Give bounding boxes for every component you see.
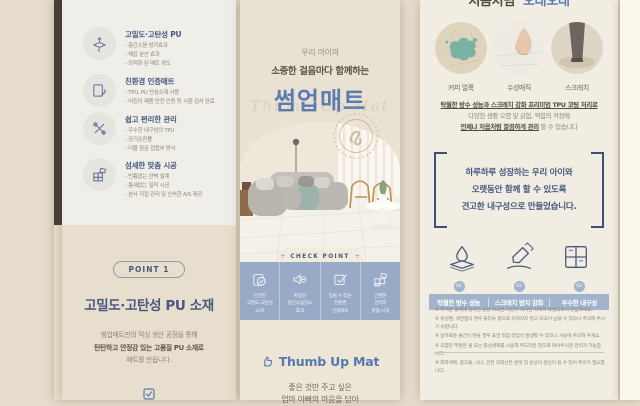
feature-item: 고밀도·고탄성 PU - 층간소음 방지효과 - 체압 분산 효과 - 최적화 … xyxy=(83,27,236,69)
panel-features: 고밀도·고탄성 PU - 층간소음 방지효과 - 체압 분산 효과 - 최적화 … xyxy=(62,0,236,400)
footer-line: 좋은 것만 주고 싶은 xyxy=(240,382,400,394)
point-1-badge: POINT 1 xyxy=(113,261,186,278)
point-body-line-strong: 탄탄하고 안정감 있는 고품질 PU 소재로 xyxy=(62,342,236,355)
point-1-section: POINT 1 고밀도·고탄성 PU 소재 썸업매트만의 믹싱 생산 공정을 통… xyxy=(62,225,236,400)
quote-line: 하루하루 성장하는 우리 아이와 xyxy=(434,165,604,182)
brand-logo: Thumb Up Mat xyxy=(240,354,400,369)
hero-subtitle: 소중한 걸음마다 함께하는 xyxy=(240,63,400,77)
durability-label: 탁월한 방수 성능 xyxy=(429,298,488,307)
quote-line: 견고한 내구성으로 만들었습니다. xyxy=(434,199,604,216)
disclaimer-list: ※ 무거운 물체에 장시간 눌린 자국은 시간이 지나면 서서히 복원되오니 안… xyxy=(435,307,605,377)
panel-durability: 처음처럼오래오래 커피 얼룩 수성매직 xyxy=(420,0,618,400)
durability-icons-row xyxy=(420,242,618,272)
plus-icon: + xyxy=(355,253,360,260)
waterproof-icon xyxy=(447,242,477,272)
check-point-caption: 간편한 관리와 맞춤 시공 xyxy=(372,293,390,315)
prev-panel-dark-section xyxy=(54,0,62,225)
check-point-caption: 믿을 수 있는 친환경 인증매트 xyxy=(329,293,352,315)
feature-bullet: - 우수한 내구성의 TPU xyxy=(125,127,177,136)
paragraph-strong: 언제나 처음처럼 깔끔하게 관리 xyxy=(461,123,539,131)
stain-test-item: 스크래치 xyxy=(550,22,605,92)
next-panel-edge xyxy=(620,0,640,400)
check-point-item: 간편한 관리와 맞춤 시공 xyxy=(360,262,400,320)
feature-bullet: - 어린이 제품 안전 인증 등 시험 검사 완료 xyxy=(125,98,214,107)
scratch-photo xyxy=(551,22,603,74)
stain-test-circles: 커피 얼룩 수성매직 스크래치 xyxy=(420,22,618,92)
hero-heading-block: 우리 아이의 소중한 걸음마다 함께하는 썸업매트 xyxy=(240,47,400,116)
easy-care-icon xyxy=(83,112,116,145)
point-1-heading: 고밀도·고탄성 PU 소재 xyxy=(62,294,236,314)
check-point-caption: 확실한 층간소음감소 효과 xyxy=(288,293,313,315)
plus-icon: + xyxy=(280,253,285,260)
disclaimer-line: ※ 유성펜, 색연필의 경우 물티슈 등으로 지워지지 않고 자국이 남을 수 … xyxy=(435,316,605,332)
eco-cert-icon xyxy=(83,74,116,107)
feature-item: 섬세한 맞춤 시공 - 빈틈없는 완벽 설계 - 틈새없는 밀착 시공 - 본사… xyxy=(83,158,236,200)
disclaimer-line: ※ 날카로운 물건이 닿을 경우 표면 찍힘·긁힘이 발생할 수 있으니 사용에… xyxy=(435,333,605,341)
disclaimer-line: ※ 화학세제, 알코올, 시너, 강한 자외선은 변색 및 손상의 원인이 될 … xyxy=(435,360,605,376)
footer-line: 엄마 아빠의 마음을 담아 xyxy=(240,394,400,406)
mat-elastic-icon xyxy=(83,27,116,60)
check-point-caption: 안전한 고밀도·고탄성 소재 xyxy=(247,293,273,315)
product-title: 썸업매트 xyxy=(240,81,400,116)
panel-hero: 우리 아이의 소중한 걸음마다 함께하는 썸업매트 Thumb Up Mat xyxy=(240,0,400,400)
feature-title: 섬세한 맞춤 시공 xyxy=(125,160,202,171)
bracket-quote: 하루하루 성장하는 우리 아이와 오랫동안 함께 할 수 있도록 견고한 내구성… xyxy=(434,152,604,228)
feature-bullet: - 본사 직접 관리 및 신속한 A/S 제공 xyxy=(125,191,202,200)
checkbox-check-icon xyxy=(62,385,236,404)
check-point-item: 안전한 고밀도·고탄성 소재 xyxy=(240,262,279,320)
feature-bullet: - 틈새없는 밀착 시공 xyxy=(125,182,202,191)
stain-caption: 커피 얼룩 xyxy=(434,82,489,92)
number-badge: 01 xyxy=(429,281,489,292)
feature-bullet: - 빈틈없는 완벽 설계 xyxy=(125,173,202,182)
water-marker-photo xyxy=(493,22,545,74)
feature-list: 고밀도·고탄성 PU - 층간소음 방지효과 - 체압 분산 효과 - 최적화 … xyxy=(62,0,236,200)
feature-item: 친환경 인증매트 - TPU, PU 안심소재 사용 - 어린이 제품 안전 인… xyxy=(83,74,236,107)
stain-caption: 스크래치 xyxy=(550,82,605,92)
check-point-band: + CHECK POINT + 안전한 고밀도·고탄성 소재 확실한 xyxy=(240,262,400,320)
feature-title: 고밀도·고탄성 PU xyxy=(125,29,181,40)
quote-line: 오랫동안 함께 할 수 있도록 xyxy=(434,182,604,199)
check-point-item: 확실한 층간소음감소 효과 xyxy=(279,262,319,320)
custom-fit-icon xyxy=(83,158,116,191)
heading-part-1: 처음처럼 xyxy=(468,0,515,9)
check-point-label: CHECK POINT xyxy=(290,254,349,260)
paragraph-line: 다양한 생활 오염 및 긁힘, 찍힘의 걱정에 xyxy=(420,111,618,122)
point-body-line: 썸업매트만의 믹싱 생산 공정을 통해 xyxy=(62,329,236,342)
hero-footer-section: Thumb Up Mat 좋은 것만 주고 싶은 엄마 아빠의 마음을 담아 xyxy=(240,320,400,400)
prev-panel-edge xyxy=(54,0,62,400)
stain-test-item: 커피 얼룩 xyxy=(434,22,489,92)
durability-icon xyxy=(561,242,591,272)
noise-speaker-icon xyxy=(291,271,308,289)
point-1-body: 썸업매트만의 믹싱 생산 공정을 통해 탄탄하고 안정감 있는 고품질 PU 소… xyxy=(62,329,236,367)
feature-bullet: - 층간소음 방지효과 xyxy=(125,42,181,51)
feature-bullet: - 공기순환률 xyxy=(125,136,177,145)
stamp-badge-icon xyxy=(332,112,380,160)
coffee-stain-photo xyxy=(435,22,487,74)
feature-bullet: - 더블 잠금 접합부 방식 xyxy=(125,145,177,154)
durability-labels: 01 02 03 탁월한 방수 성능 스크래치 방지 강화 우수한 내구성 xyxy=(429,281,609,310)
disclaimer-line: ※ 오염된 부분은 물 또는 중성세제를 사용해 부드러운 천으로 닦아주시면 … xyxy=(435,343,605,359)
number-badge: 03 xyxy=(549,281,609,292)
feature-item: 쉽고 편리한 관리 - 우수한 내구성의 TPU - 공기순환률 - 더블 잠금… xyxy=(83,112,236,154)
feature-bullet: - 체압 분산 효과 xyxy=(125,51,181,60)
feature-title: 쉽고 편리한 관리 xyxy=(125,114,177,125)
feature-bullet: - TPU, PU 안심소재 사용 xyxy=(125,89,214,98)
paragraph-rest: 할 수 있습니다 xyxy=(539,123,578,131)
hero-eyebrow: 우리 아이의 xyxy=(240,47,400,58)
section-divider xyxy=(434,352,604,353)
stain-test-item: 수성매직 xyxy=(492,22,547,92)
feature-title: 친환경 인증매트 xyxy=(125,76,214,87)
hero-footer-text: 좋은 것만 주고 싶은 엄마 아빠의 마음을 담아 xyxy=(240,382,400,406)
brand-logo-text: Thumb Up Mat xyxy=(279,354,380,369)
anti-scratch-icon xyxy=(504,242,534,272)
paragraph-line: 언제나 처음처럼 깔끔하게 관리 할 수 있습니다 xyxy=(420,122,618,133)
disclaimer-line: ※ 무거운 물체에 장시간 눌린 자국은 시간이 지나면 서서히 복원되오니 안… xyxy=(435,307,605,315)
heading-part-2: 오래오래 xyxy=(523,0,570,9)
certificate-pen-icon xyxy=(332,271,349,289)
thumbs-up-icon xyxy=(261,355,274,368)
stain-caption: 수성매직 xyxy=(492,82,547,92)
mat-check-icon xyxy=(251,271,268,289)
check-point-tab: + CHECK POINT + xyxy=(276,247,364,262)
durability-label: 우수한 내구성 xyxy=(549,298,609,307)
number-badge: 02 xyxy=(489,281,549,292)
durability-label: 스크래치 방지 강화 xyxy=(488,298,548,307)
feature-bullet: - 최적화 된 매트 경도 xyxy=(125,60,181,69)
paragraph-line: 탁월한 방수 성능과 스크래치 강화 프리미엄 TPU 코팅 처리로 xyxy=(420,100,618,111)
durability-heading: 처음처럼오래오래 xyxy=(420,0,618,9)
check-point-item: 믿을 수 있는 친환경 인증매트 xyxy=(320,262,360,320)
mat-blocks-icon xyxy=(372,271,389,289)
point-body-line: 매트를 만듭니다. xyxy=(62,354,236,367)
coating-paragraph: 탁월한 방수 성능과 스크래치 강화 프리미엄 TPU 코팅 처리로 다양한 생… xyxy=(420,100,618,134)
